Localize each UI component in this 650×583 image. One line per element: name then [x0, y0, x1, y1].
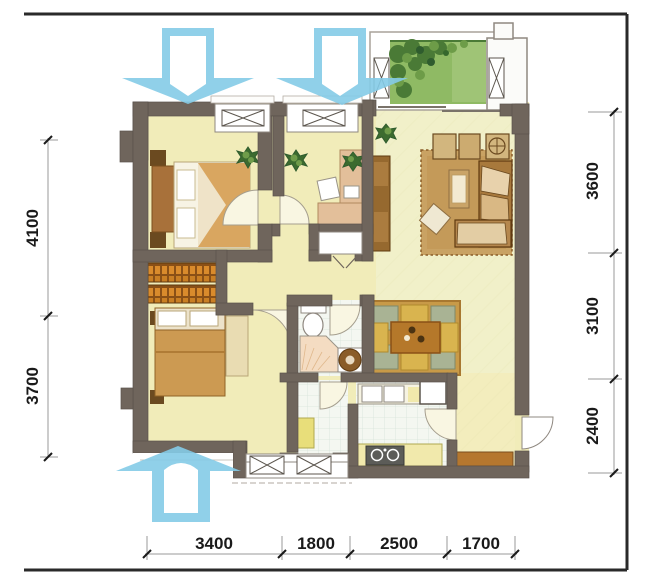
- svg-text:4100: 4100: [23, 209, 42, 247]
- svg-text:3100: 3100: [583, 297, 602, 335]
- svg-text:3600: 3600: [583, 162, 602, 200]
- svg-text:1800: 1800: [297, 534, 335, 553]
- svg-text:1700: 1700: [462, 534, 500, 553]
- svg-text:2500: 2500: [380, 534, 418, 553]
- svg-text:2400: 2400: [583, 407, 602, 445]
- svg-text:3700: 3700: [23, 367, 42, 405]
- svg-text:3400: 3400: [195, 534, 233, 553]
